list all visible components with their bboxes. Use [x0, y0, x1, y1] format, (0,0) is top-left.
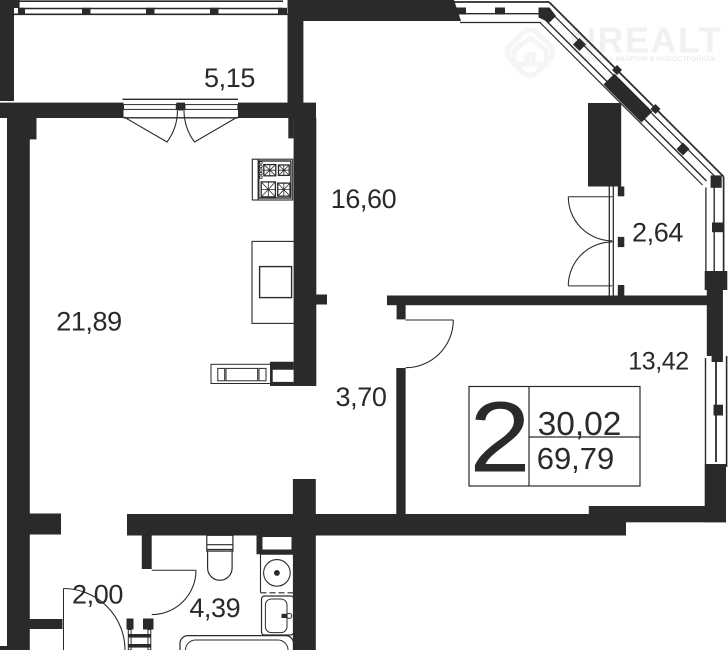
svg-text:30,02: 30,02 [538, 406, 622, 443]
svg-text:3,70: 3,70 [336, 382, 387, 412]
svg-text:ПРОДАЖА КВАРТИР В НОВОСТРОЙКАХ: ПРОДАЖА КВАРТИР В НОВОСТРОЙКАХ [578, 54, 716, 63]
svg-text:2,00: 2,00 [72, 580, 123, 610]
svg-text:2: 2 [469, 382, 530, 493]
svg-text:69,79: 69,79 [537, 441, 615, 476]
svg-text:21,89: 21,89 [56, 307, 122, 337]
svg-text:13,42: 13,42 [628, 348, 689, 376]
svg-text:2,64: 2,64 [632, 218, 683, 248]
svg-text:16,60: 16,60 [331, 184, 397, 214]
svg-text:4,39: 4,39 [189, 593, 240, 623]
svg-text:5,15: 5,15 [204, 63, 255, 93]
